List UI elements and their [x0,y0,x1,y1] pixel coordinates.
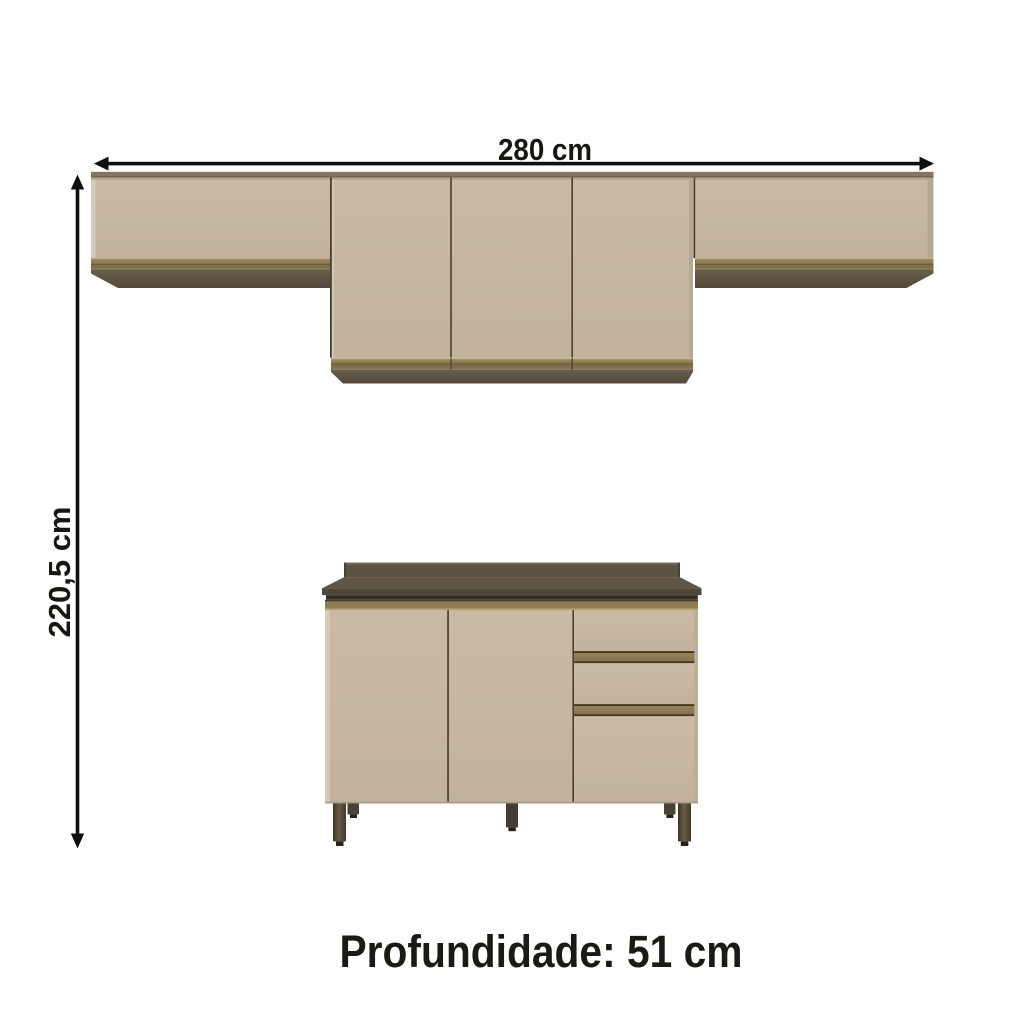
svg-text:280 cm: 280 cm [498,132,592,167]
svg-text:220,5 cm: 220,5 cm [42,507,77,638]
svg-text:Profundidade: 51 cm: Profundidade: 51 cm [340,926,743,977]
